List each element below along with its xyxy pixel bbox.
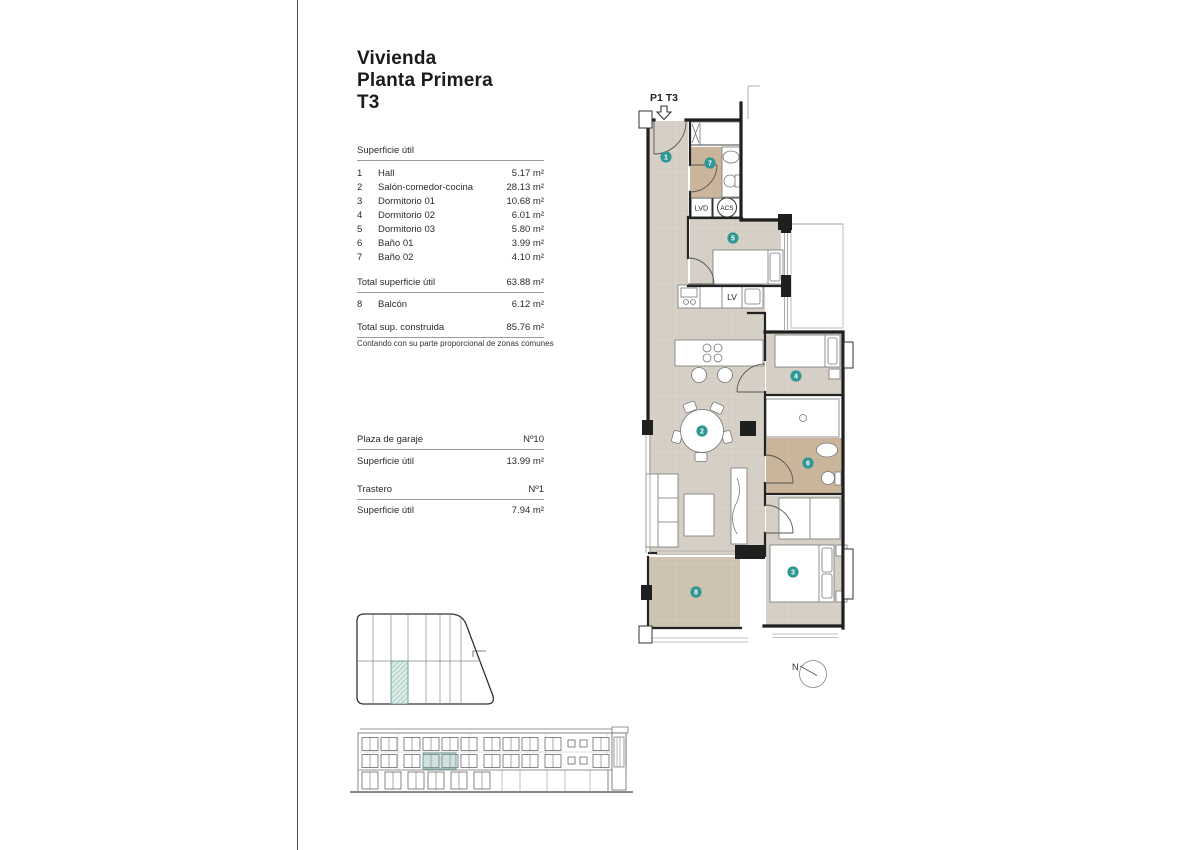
garage-area-row: Superficie útil13.99 m² <box>357 456 544 467</box>
row-num: 6 <box>357 238 378 249</box>
room-marker-4: 4 <box>790 370 801 381</box>
garage-area-label: Superficie útil <box>357 456 414 467</box>
garage-plan-drawing <box>340 600 510 715</box>
nightstand <box>829 369 840 379</box>
row-num: 2 <box>357 182 378 193</box>
row-value: 10.68 m² <box>507 196 545 207</box>
row-label: Balcón <box>378 299 512 310</box>
row-value: 6.01 m² <box>512 210 544 221</box>
shower <box>766 399 839 437</box>
table-row: 4Dormitorio 026.01 m² <box>357 208 544 222</box>
row-value: 28.13 m² <box>507 182 545 193</box>
table-row: 6Baño 013.99 m² <box>357 236 544 250</box>
bath2-toilet <box>724 175 736 187</box>
row-label: Baño 02 <box>378 252 512 263</box>
acs-label: ACS <box>720 205 733 212</box>
north-label: N <box>792 662 799 672</box>
room-marker-6: 6 <box>802 457 813 468</box>
storage-area-row: Superficie útil7.94 m² <box>357 505 544 516</box>
storage-title: Trastero <box>357 484 392 495</box>
table-row: 1Hall5.17 m² <box>357 166 544 180</box>
svg-text:8: 8 <box>694 590 698 597</box>
row-label: Dormitorio 03 <box>378 224 512 235</box>
surface-table: 1Hall5.17 m² 2Salón-comedor-cocina28.13 … <box>357 166 544 264</box>
title-line: T3 <box>357 92 493 114</box>
lvd-label: LVD <box>695 204 708 213</box>
room-marker-2: 2 <box>696 425 707 436</box>
total-util-row: Total superficie útil63.88 m² <box>357 277 544 293</box>
page-left-border <box>297 0 298 850</box>
title-line: Vivienda <box>357 48 493 70</box>
north-compass: N <box>792 661 827 688</box>
page-title: Vivienda Planta Primera T3 <box>357 48 493 114</box>
row-label: Hall <box>378 168 512 179</box>
total-built-row: Total sup. construida85.76 m² <box>357 322 544 338</box>
garage-header: Plaza de garajeNº10 <box>357 434 544 450</box>
tv-unit <box>731 468 747 544</box>
entry-arrow-icon <box>657 106 671 120</box>
surface-section-title: Superficie útil <box>357 145 414 156</box>
footnote: Contando con su parte proporcional de zo… <box>357 339 554 348</box>
row-label: Dormitorio 02 <box>378 210 512 221</box>
garage-number: Nº10 <box>523 434 544 445</box>
pillow <box>822 574 832 598</box>
row-num: 1 <box>357 168 378 179</box>
svg-text:1: 1 <box>664 155 668 162</box>
lv-label: LV <box>727 292 737 302</box>
row-label: Baño 01 <box>378 238 512 249</box>
sofa <box>646 474 678 547</box>
appliance <box>745 289 760 304</box>
room-marker-1: 1 <box>660 151 671 162</box>
bath2-sink <box>723 151 739 163</box>
coffee-table <box>684 494 714 536</box>
row-num: 8 <box>357 299 378 310</box>
row-value: 3.99 m² <box>512 238 544 249</box>
storage-header: TrasteroNº1 <box>357 484 544 500</box>
total-util-value: 63.88 m² <box>507 277 545 288</box>
room-marker-7: 7 <box>704 157 715 168</box>
floor-plan-drawing: P1 T3 LVD ACS LV 1 2 3 4 5 6 7 8 N <box>600 75 880 710</box>
stair-tower <box>612 733 626 790</box>
row-value: 6.12 m² <box>512 299 544 310</box>
storage-area-label: Superficie útil <box>357 505 414 516</box>
row-num: 5 <box>357 224 378 235</box>
room-marker-3: 3 <box>787 566 798 577</box>
unit-location-highlight <box>423 753 456 769</box>
pillow <box>822 548 832 572</box>
balcony-row: 8Balcón6.12 m² <box>357 297 544 311</box>
room-marker-5: 5 <box>727 232 738 243</box>
svg-text:4: 4 <box>794 374 798 381</box>
pillow <box>770 253 780 281</box>
stool <box>718 368 733 383</box>
svg-text:6: 6 <box>806 461 810 468</box>
windows-ground-row <box>362 770 590 791</box>
room-marker-8: 8 <box>690 586 701 597</box>
svg-text:7: 7 <box>708 161 712 168</box>
row-label: Dormitorio 01 <box>378 196 507 207</box>
total-built-value: 85.76 m² <box>507 322 545 333</box>
bath1-sink <box>817 443 838 457</box>
table-row: 7Baño 024.10 m² <box>357 250 544 264</box>
row-value: 5.80 m² <box>512 224 544 235</box>
svg-text:5: 5 <box>731 236 735 243</box>
table-row: 5Dormitorio 035.80 m² <box>357 222 544 236</box>
row-label: Salón-comedor-cocina <box>378 182 507 193</box>
row-value: 4.10 m² <box>512 252 544 263</box>
row-num: 4 <box>357 210 378 221</box>
table-row: 2Salón-comedor-cocina28.13 m² <box>357 180 544 194</box>
storage-area-value: 7.94 m² <box>512 505 544 516</box>
stool <box>692 368 707 383</box>
storage-number: Nº1 <box>528 484 544 495</box>
total-built-label: Total sup. construida <box>357 322 444 333</box>
pillow <box>828 338 837 364</box>
garage-title: Plaza de garaje <box>357 434 423 445</box>
svg-text:2: 2 <box>700 429 704 436</box>
svg-text:3: 3 <box>791 570 795 577</box>
unit-label: P1 T3 <box>650 92 678 104</box>
row-num: 7 <box>357 252 378 263</box>
plan-sheet-page: { "header": { "title_line1": "Vivienda",… <box>0 0 1200 850</box>
table-row: 3Dormitorio 0110.68 m² <box>357 194 544 208</box>
surface-section-header: Superficie útil <box>357 145 544 161</box>
bath1-toilet <box>822 472 835 485</box>
total-util-label: Total superficie útil <box>357 277 435 288</box>
row-num: 3 <box>357 196 378 207</box>
compass-needle <box>800 666 817 676</box>
row-value: 5.17 m² <box>512 168 544 179</box>
laundry-closet <box>690 122 741 145</box>
title-line: Planta Primera <box>357 70 493 92</box>
garage-area-value: 13.99 m² <box>507 456 545 467</box>
garage-outline <box>357 614 493 704</box>
building-elevation-drawing <box>345 715 640 800</box>
